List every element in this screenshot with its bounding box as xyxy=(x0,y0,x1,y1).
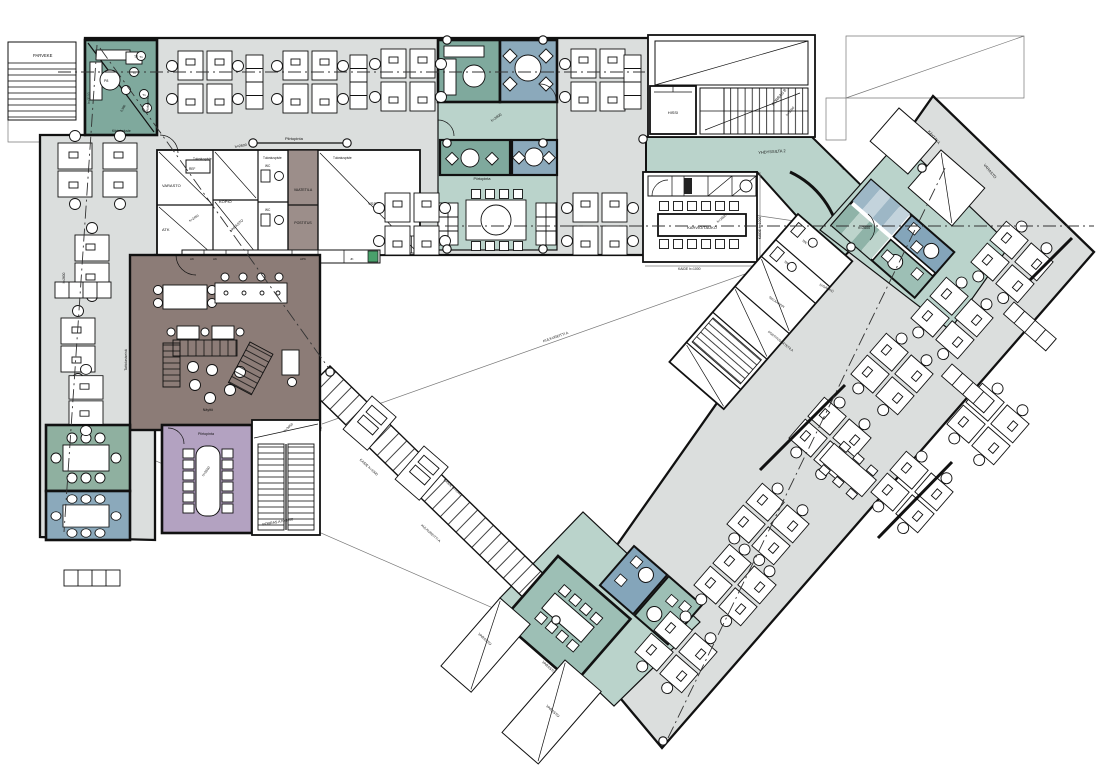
label-kaide: KAIDE h=1000 xyxy=(758,217,762,240)
label-ref: REF xyxy=(189,167,195,171)
label-ak: AK xyxy=(190,257,194,261)
bleacher-steps xyxy=(163,343,180,387)
label-wc: WC xyxy=(265,164,271,168)
label-parveke: PARVEKE xyxy=(33,53,53,58)
label-hissi: HISSI xyxy=(668,110,678,115)
label-piirtopinta: Piirtopinta xyxy=(146,96,150,112)
label-wc: WC xyxy=(265,208,271,212)
label-vaatetila: VAATETILA xyxy=(294,188,313,192)
label-taittolasiseina: Taittolasiseinä xyxy=(124,349,128,370)
break-room xyxy=(643,172,760,266)
label-t1: T1 xyxy=(139,55,143,59)
label-p8: P8 xyxy=(104,79,108,83)
mail-room-strip xyxy=(288,150,318,255)
label-tulostuspiste: Tulostuspiste xyxy=(193,157,212,161)
label-h2600: h=2600 xyxy=(858,226,870,230)
innovation-room xyxy=(85,40,157,135)
label-atk: ATK xyxy=(162,227,170,232)
purple-meeting-room xyxy=(162,425,252,533)
label-h2600: h=2600 xyxy=(62,272,66,283)
label-varasto: VARASTO xyxy=(162,183,181,188)
label-t2: T2 xyxy=(134,55,138,59)
floor-plan-page: PARVEKE Kiintokaluste h=3100 T2 P8 T1 T1… xyxy=(0,0,1098,776)
label-postitus: POSTITUS xyxy=(294,221,312,225)
stairs-b-block xyxy=(648,35,815,137)
floor-plan-canvas: PARVEKE Kiintokaluste h=3100 T2 P8 T1 T1… xyxy=(0,0,1098,776)
label-kiintokaluste: Kiintokaluste xyxy=(112,129,131,133)
label-h3100: h=3100 xyxy=(87,92,91,104)
label-piirtopinta: Piirtopinta xyxy=(285,136,304,141)
label-kaide: KAIDE h=1000 xyxy=(678,267,701,271)
label-piirtopinta: Piirtopinta xyxy=(198,432,214,436)
label-piirtopinta: Piirtopinta xyxy=(474,177,492,181)
label-kopio: KOPIO xyxy=(219,199,232,204)
label-ak: AK xyxy=(213,257,217,261)
label-jk: JK xyxy=(350,257,354,261)
label-t1: T1 xyxy=(132,71,136,75)
label-kahvio: KAHVIO/TAUKO xyxy=(687,225,717,230)
blue-meeting-room xyxy=(46,491,130,540)
label-apk: APK xyxy=(300,257,306,261)
label-vss: VSS xyxy=(368,201,376,206)
bleacher-steps xyxy=(173,340,237,356)
label-tulostuspiste: Tulostuspiste xyxy=(263,156,282,160)
label-naytto: Näyttö xyxy=(203,408,213,412)
lounge-cafe-room xyxy=(130,255,320,430)
label-tulostuspiste: Tulostuspiste xyxy=(333,156,352,160)
